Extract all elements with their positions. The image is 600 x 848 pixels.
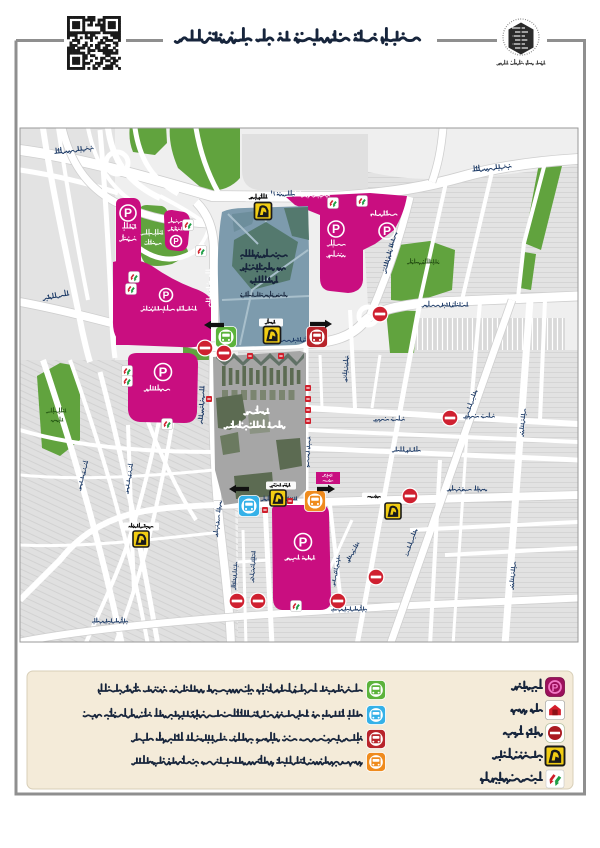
svg-text:P: P [173, 237, 179, 246]
svg-text:P: P [163, 290, 170, 301]
svg-text:P: P [299, 534, 308, 549]
svg-text:P: P [124, 206, 132, 220]
svg-text:P: P [159, 364, 168, 379]
svg-text:P: P [383, 224, 391, 238]
svg-text:P: P [552, 683, 559, 694]
svg-text:P: P [332, 222, 340, 236]
